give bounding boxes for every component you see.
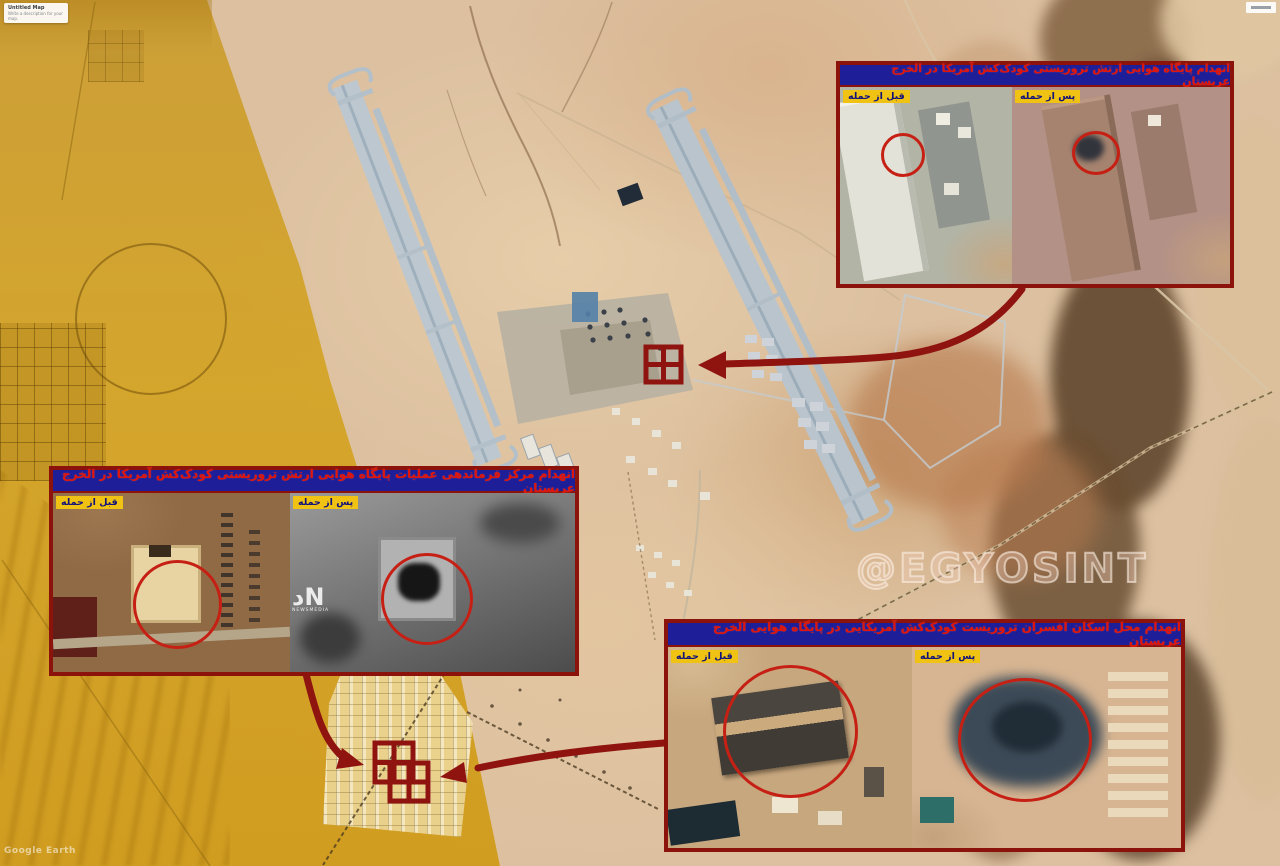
inset-command-images: قبل از حمله پس از حمله دN NEWSMEDIA xyxy=(53,493,575,672)
target-circle xyxy=(381,553,473,645)
annotated-satellite-map: @EGYOSINT Google Earth Untitled Map Writ… xyxy=(0,0,1280,866)
logo-caption: NEWSMEDIA xyxy=(292,609,329,614)
target-circle xyxy=(1072,131,1120,175)
inset-housing-title: انهدام محل اسکان افسران تروریست کودک‌کش … xyxy=(668,623,1181,645)
before-image-housing: قبل از حمله xyxy=(668,647,912,848)
inset-housing-images: قبل از حمله پس از حمله xyxy=(668,647,1181,848)
inset-panel-command-center: انهدام مرکز فرماندهی عملیات پایگاه هوایی… xyxy=(49,466,579,676)
inset-airbase-title: انهدام پایگاه هوایی ارتش تروریستی کودک‌ک… xyxy=(840,65,1230,85)
before-image-command: قبل از حمله xyxy=(53,493,290,672)
after-image-housing: پس از حمله xyxy=(912,647,1181,848)
cabin xyxy=(864,767,884,797)
news-agency-logo: دN NEWSMEDIA xyxy=(292,585,329,614)
after-label: پس از حمله xyxy=(293,496,358,509)
building-block xyxy=(918,101,990,228)
target-circle xyxy=(881,133,925,177)
rooftop-unit xyxy=(936,113,950,125)
rooftop-unit xyxy=(958,127,971,138)
building-block xyxy=(1131,104,1197,221)
target-circle xyxy=(723,665,858,798)
before-label: قبل از حمله xyxy=(843,90,910,103)
shadow-blob xyxy=(480,503,560,543)
after-image-command: پس از حمله دN NEWSMEDIA xyxy=(290,493,575,672)
before-label: قبل از حمله xyxy=(56,496,123,509)
building-roof xyxy=(840,93,929,282)
vehicle-row xyxy=(221,507,233,627)
before-image-airbase: قبل از حمله xyxy=(840,87,1012,284)
dark-pool xyxy=(668,800,740,845)
cabin-rows xyxy=(1108,667,1168,817)
target-circle xyxy=(133,560,222,649)
inset-panel-airbase: انهدام پایگاه هوایی ارتش تروریستی کودک‌ک… xyxy=(836,61,1234,288)
after-image-airbase: پس از حمله xyxy=(1012,87,1230,284)
inset-airbase-images: قبل از حمله پس از حمله xyxy=(840,87,1230,284)
arrow-housing xyxy=(478,743,664,768)
before-label: قبل از حمله xyxy=(671,650,738,663)
inset-command-title: انهدام مرکز فرماندهی عملیات پایگاه هوایی… xyxy=(53,470,575,491)
cabin xyxy=(818,811,842,825)
building-roof xyxy=(1041,94,1141,281)
teal-pool xyxy=(920,797,954,823)
vehicle-row xyxy=(249,523,260,633)
target-box-airbase xyxy=(646,347,681,382)
arrowhead-airbase-icon xyxy=(698,351,726,379)
inset-panel-officers-housing: انهدام محل اسکان افسران تروریست کودک‌کش … xyxy=(664,619,1185,852)
rooftop-unit xyxy=(944,183,959,195)
after-label: پس از حمله xyxy=(915,650,980,663)
shadow-blob xyxy=(300,613,360,663)
logo-monogram: دN xyxy=(292,585,329,609)
arrow-airbase xyxy=(724,289,1022,364)
rooftop-unit xyxy=(1148,115,1161,126)
arrow-command xyxy=(306,674,344,758)
after-label: پس از حمله xyxy=(1015,90,1080,103)
building-entrance xyxy=(149,545,171,557)
target-circle xyxy=(958,678,1092,802)
arrowhead-housing-icon xyxy=(440,762,467,783)
cabin xyxy=(772,797,798,813)
